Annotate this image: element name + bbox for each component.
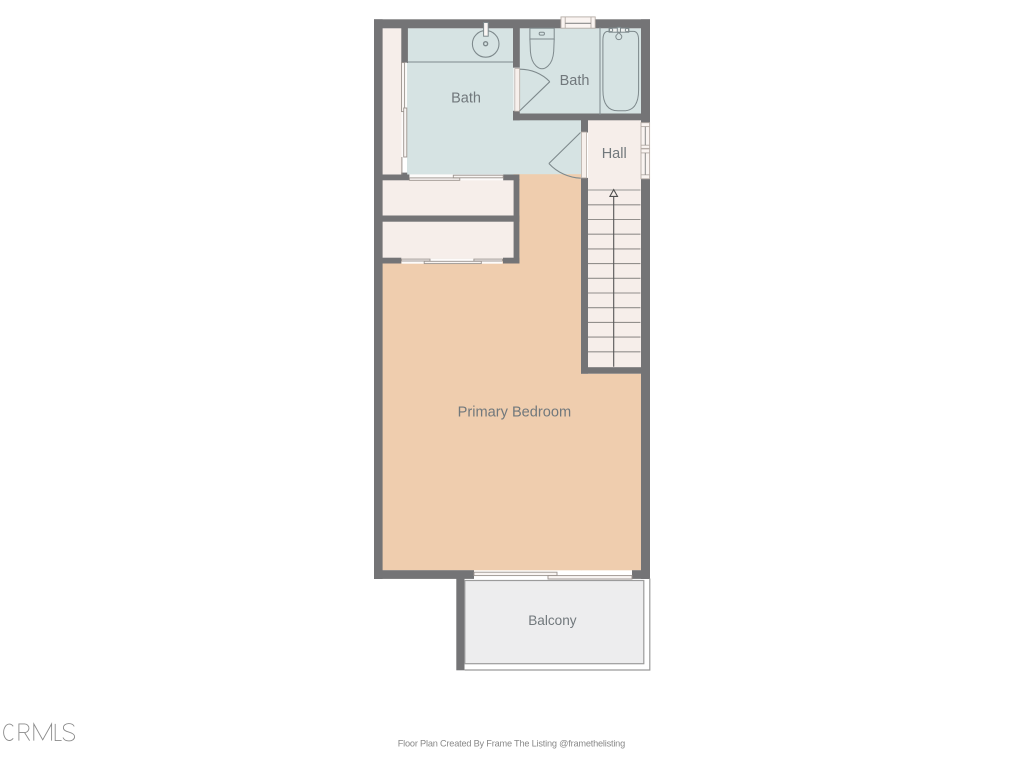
svg-text:Primary Bedroom: Primary Bedroom bbox=[458, 404, 572, 420]
svg-text:Floor Plan Created By Frame Th: Floor Plan Created By Frame The Listing … bbox=[398, 738, 625, 748]
svg-text:Bath: Bath bbox=[451, 91, 481, 107]
svg-text:Balcony: Balcony bbox=[528, 613, 577, 628]
svg-text:Hall: Hall bbox=[602, 146, 627, 162]
svg-text:Bath: Bath bbox=[560, 73, 590, 89]
